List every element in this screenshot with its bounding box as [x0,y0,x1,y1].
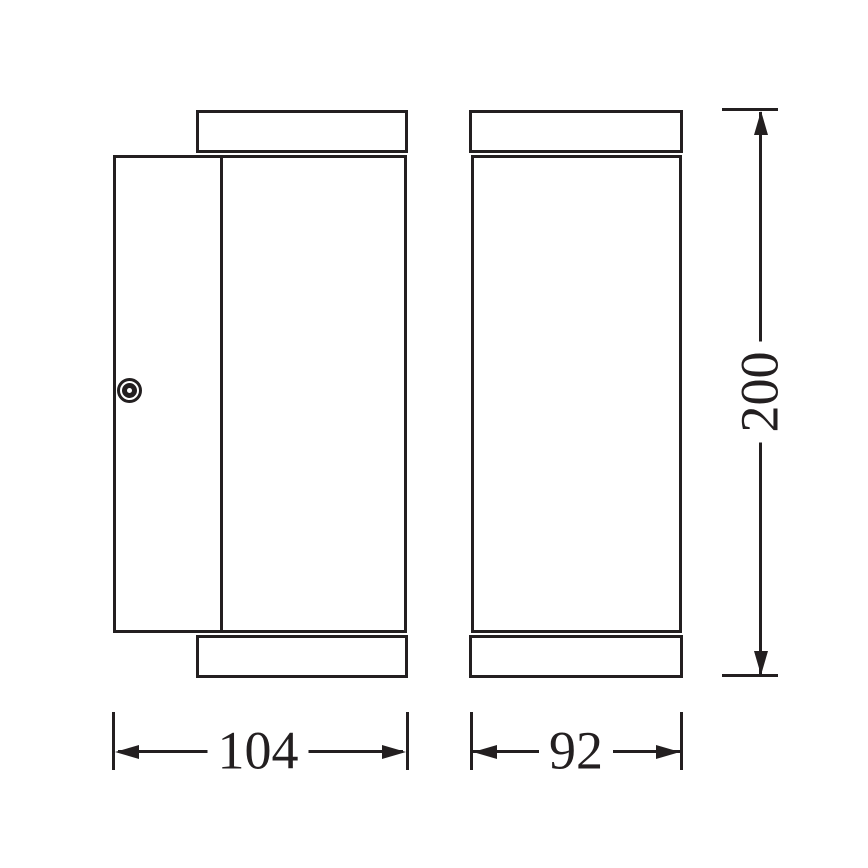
arrow-left-icon [115,745,139,759]
extension-tick-top [722,108,778,111]
side-top-cap [196,110,408,153]
arrow-down-icon [754,651,768,675]
dimension-value-height: 200 [730,342,789,443]
front-top-cap [469,110,683,153]
arrow-right-icon [656,745,680,759]
front-bottom-cap [469,635,683,678]
extension-line [680,712,683,770]
dimension-drawing: 104 92 200 [0,0,868,868]
side-body [220,155,407,633]
dimension-value-side-width: 104 [208,721,309,780]
arrow-up-icon [754,111,768,135]
extension-line [406,712,409,770]
arrow-left-icon [473,745,497,759]
side-bottom-cap [196,635,408,678]
mounting-screw-center [127,388,132,393]
dimension-value-front-width: 92 [539,721,613,780]
front-body [471,155,682,633]
extension-tick-bottom [722,674,778,677]
extension-line [470,712,473,770]
extension-line [112,712,115,770]
arrow-right-icon [382,745,406,759]
